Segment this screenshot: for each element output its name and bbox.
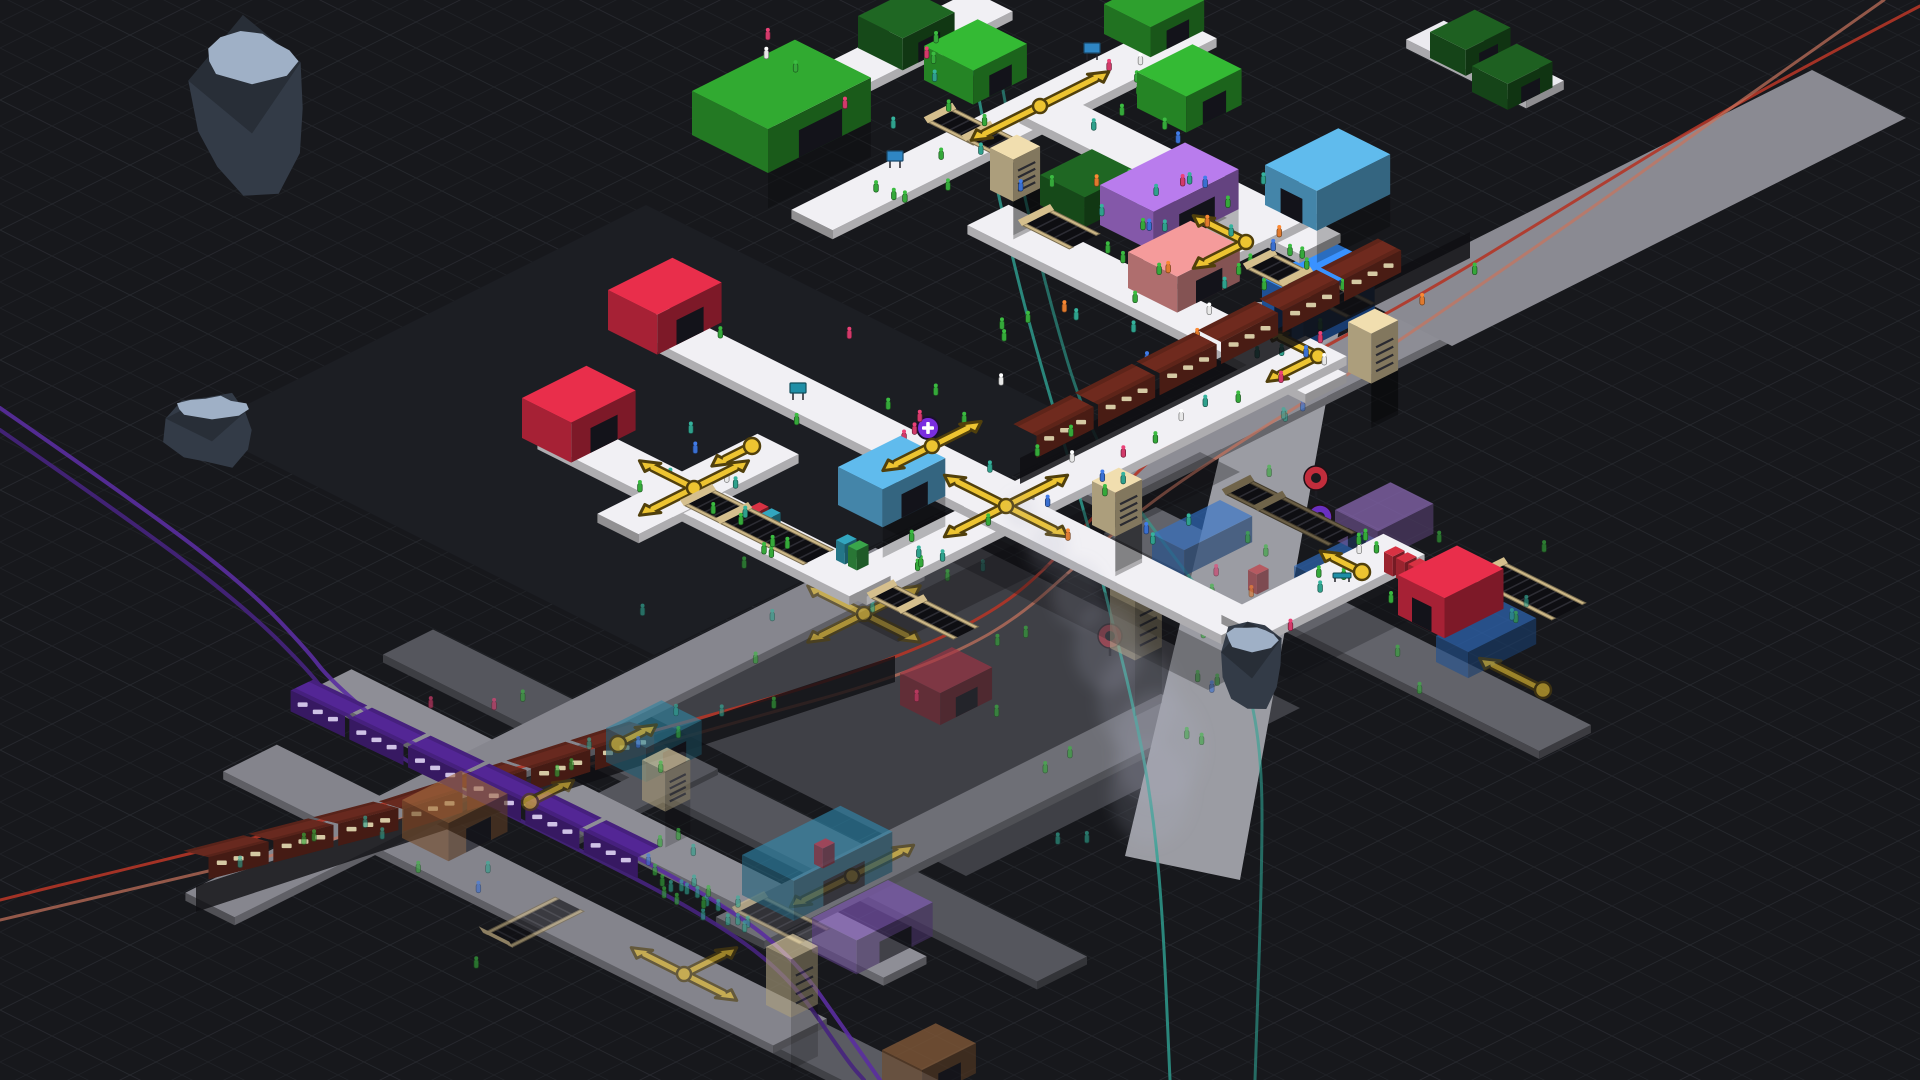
shop-brown-2[interactable] xyxy=(882,1023,976,1080)
rock-large xyxy=(188,15,302,196)
surface-slab-northeast xyxy=(1358,70,1906,346)
game-viewport[interactable] xyxy=(0,0,1920,1080)
rock-center xyxy=(1221,622,1282,709)
station-scene-canvas[interactable] xyxy=(0,0,1920,1080)
vending-machine-red-lower[interactable] xyxy=(814,838,835,868)
rock-small xyxy=(163,393,252,468)
info-board-ne[interactable] xyxy=(1084,43,1100,60)
